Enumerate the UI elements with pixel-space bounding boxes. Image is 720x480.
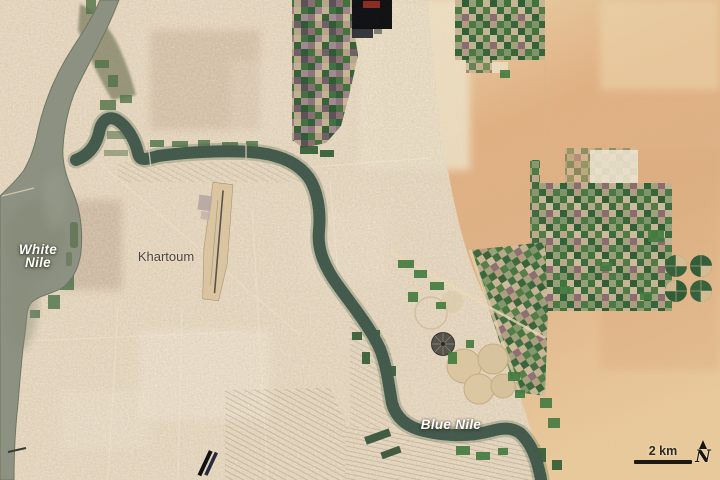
- film-grain: [0, 0, 720, 480]
- compass-north-label: N: [690, 449, 716, 466]
- scale-bar-line: [634, 460, 692, 464]
- scale-bar-label: 2 km: [634, 445, 692, 458]
- compass-north-indicator: N: [690, 440, 716, 466]
- satellite-map: White Nile Khartoum Blue Nile 2 km N: [0, 0, 720, 480]
- satellite-imagery: [0, 0, 720, 480]
- scale-bar: 2 km: [634, 445, 692, 464]
- north-arrow-icon: [699, 440, 707, 449]
